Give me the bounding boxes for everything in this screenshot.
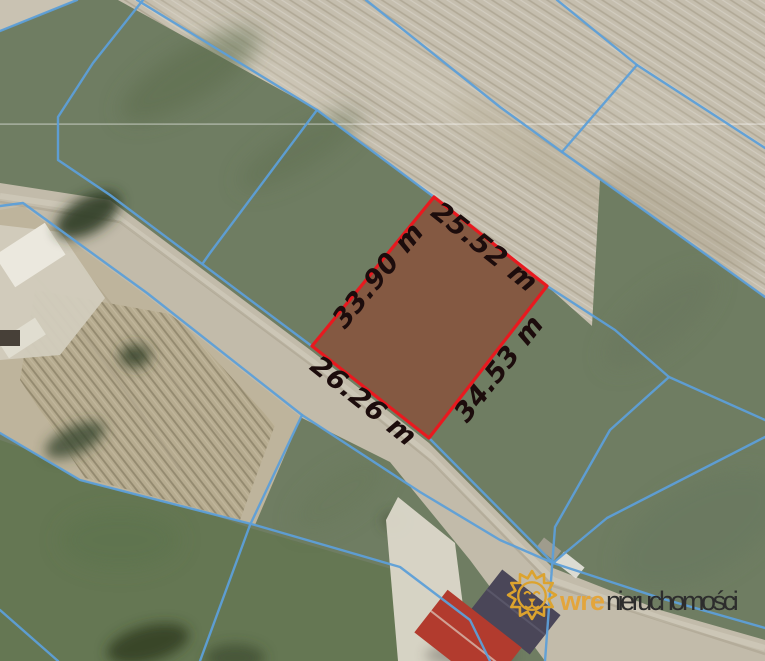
brand-text-suffix: nieruchomości [606, 586, 739, 616]
dark-shed [0, 330, 20, 346]
imagery-seam-line [0, 124, 765, 125]
aerial-map-view: 25.52 m 33.90 m 34.53 m 26.26 m wre nier… [0, 0, 765, 661]
brand-text-prefix: wre [559, 586, 605, 616]
